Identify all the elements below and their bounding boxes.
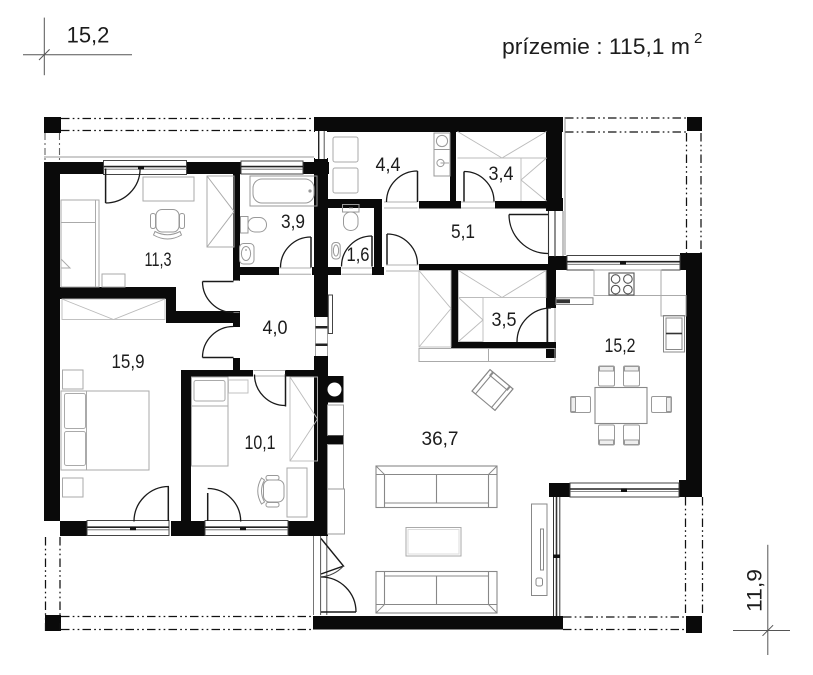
svg-text:15,9: 15,9 — [112, 352, 145, 373]
svg-text:3,4: 3,4 — [489, 164, 514, 185]
svg-text:4,4: 4,4 — [376, 155, 401, 176]
svg-text:11,9: 11,9 — [744, 569, 767, 612]
svg-text:10,1: 10,1 — [245, 433, 276, 454]
svg-text:prízemie : 115,1 m: prízemie : 115,1 m — [502, 34, 690, 59]
svg-text:3,5: 3,5 — [492, 310, 517, 331]
svg-text:1,6: 1,6 — [347, 245, 370, 266]
svg-text:36,7: 36,7 — [422, 429, 459, 450]
svg-text:3,9: 3,9 — [281, 212, 305, 233]
svg-text:2: 2 — [694, 30, 702, 47]
svg-text:15,2: 15,2 — [605, 336, 636, 357]
svg-text:5,1: 5,1 — [451, 222, 475, 243]
svg-text:4,0: 4,0 — [263, 318, 288, 339]
svg-text:11,3: 11,3 — [145, 250, 172, 271]
svg-text:15,2: 15,2 — [67, 23, 110, 48]
